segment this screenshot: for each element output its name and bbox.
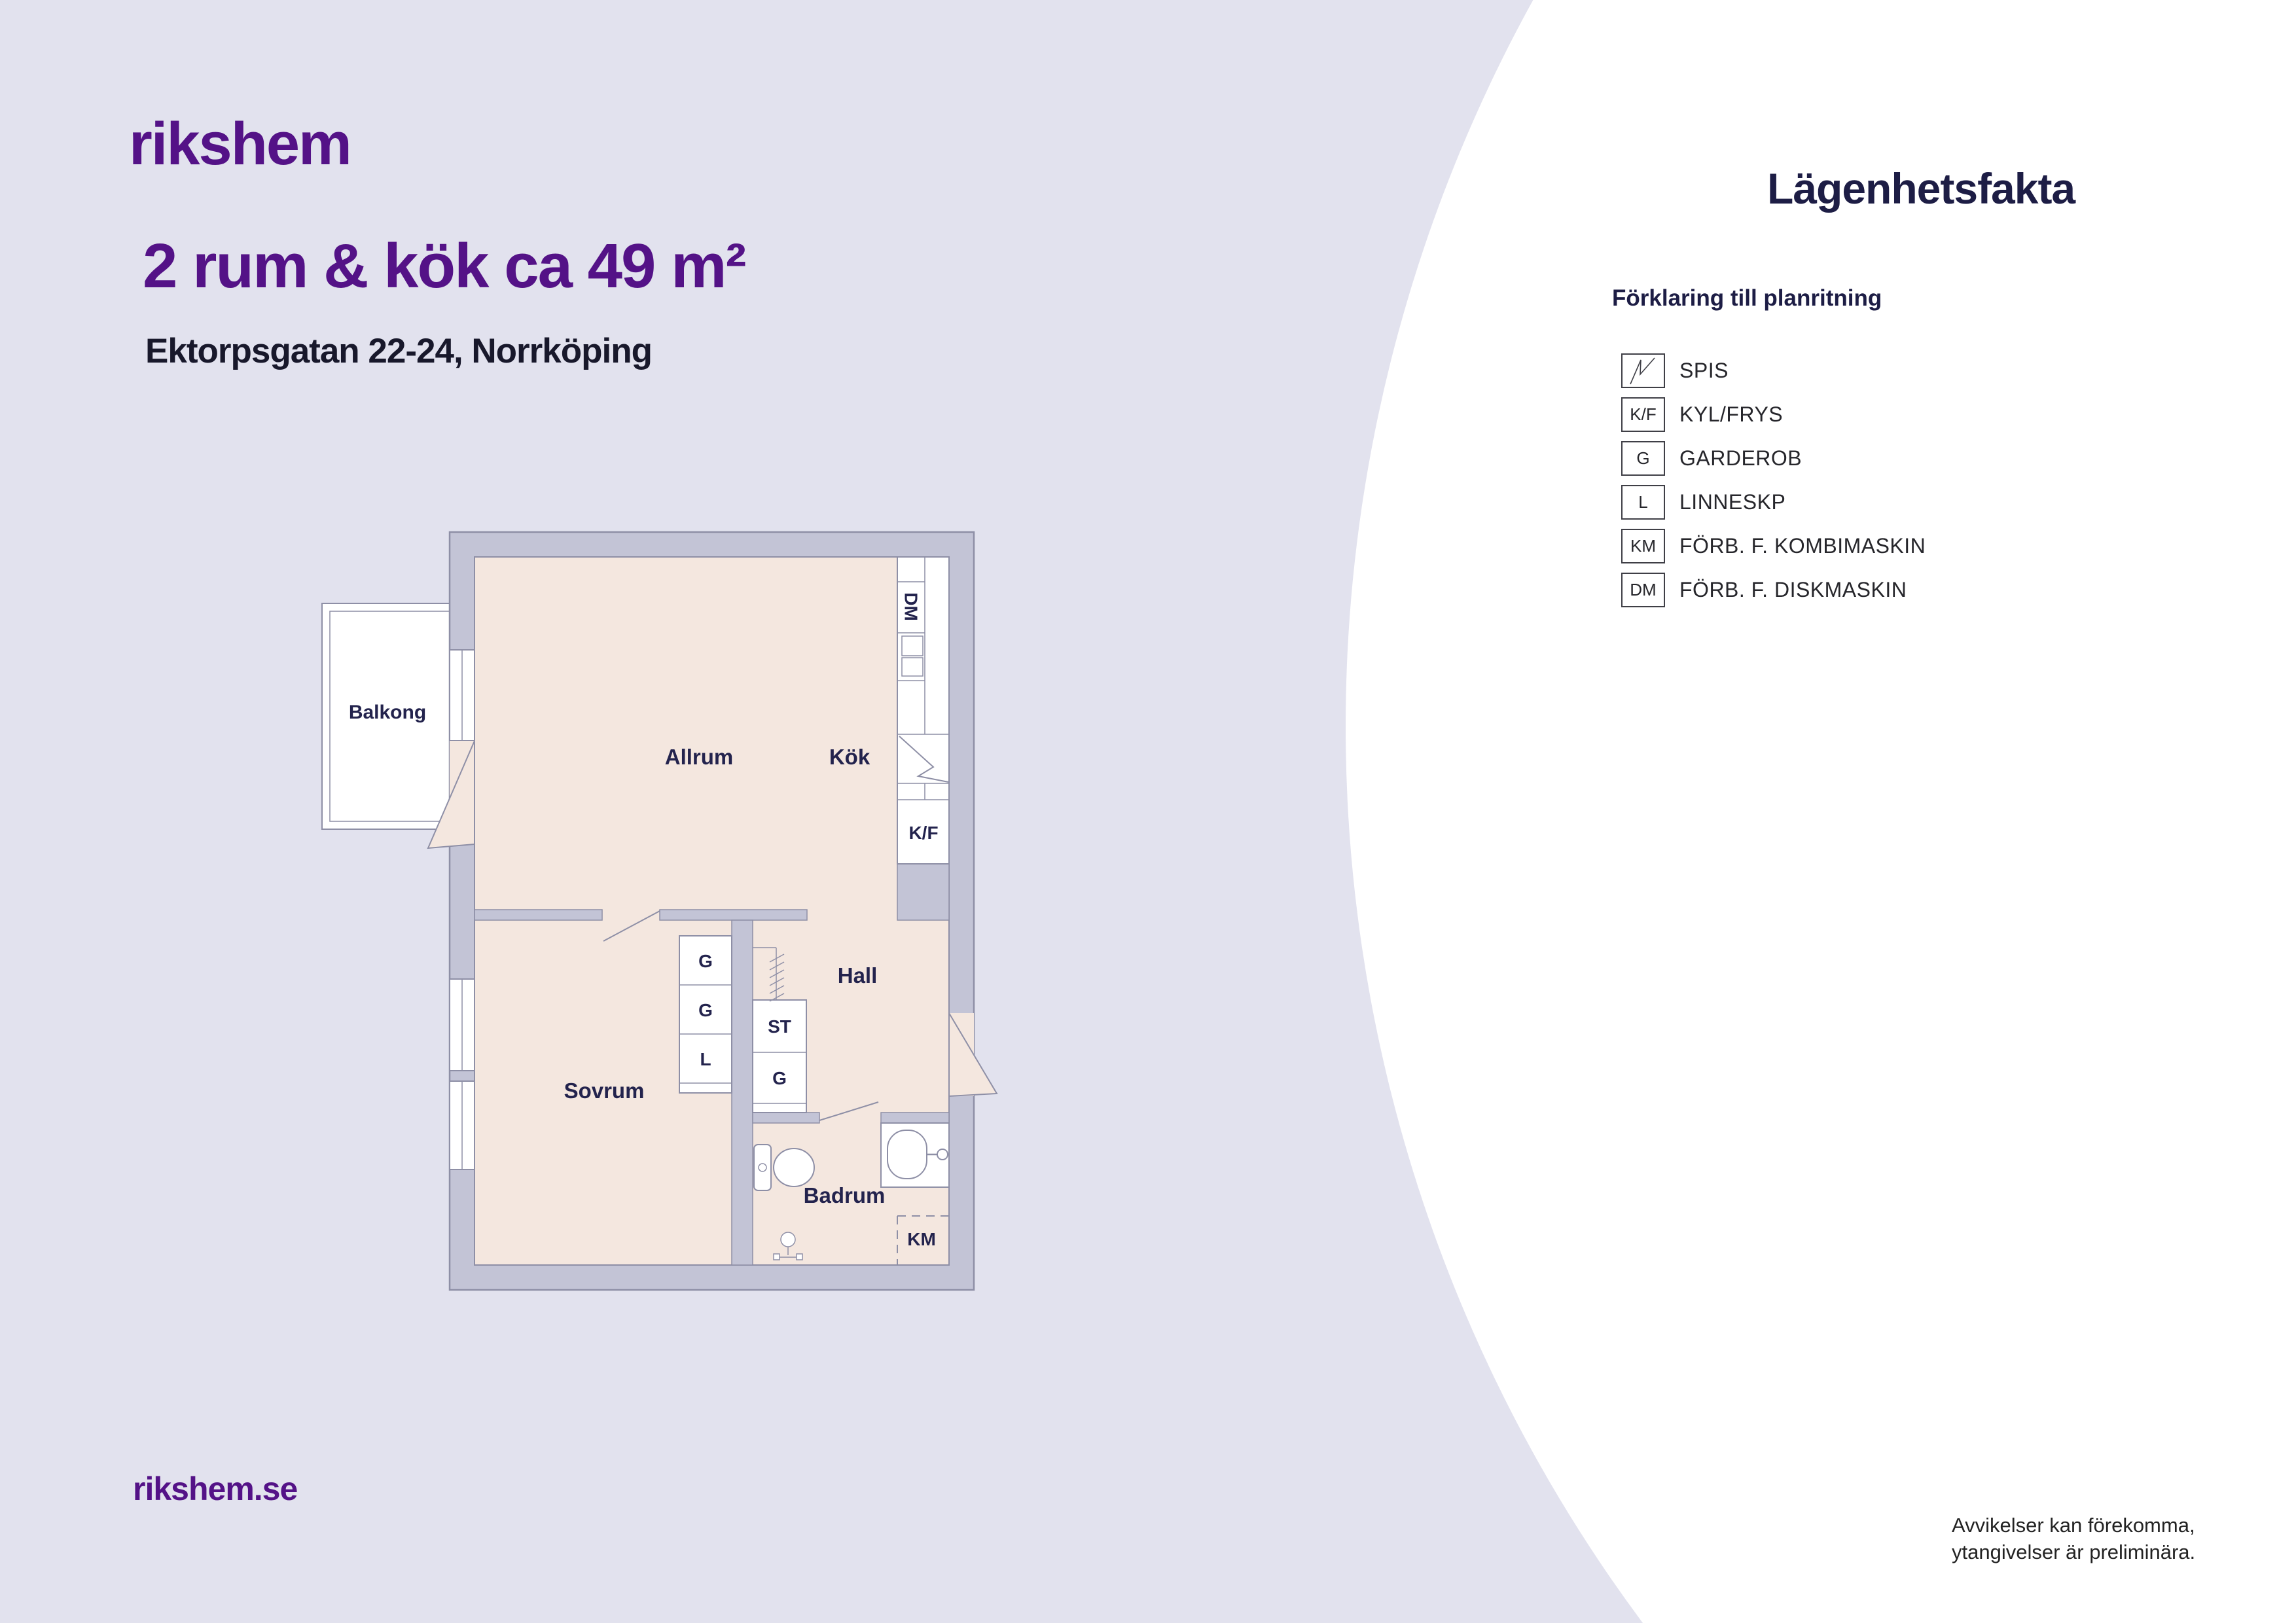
facts-title: Lägenhetsfakta (1767, 164, 2075, 213)
website-link: rikshem.se (133, 1470, 297, 1508)
legend-key-box: L (1621, 485, 1665, 520)
legend-key-box: K/F (1621, 397, 1665, 432)
address-subtitle: Ektorpsgatan 22-24, Norrköping (145, 331, 652, 371)
legend-key-box: KM (1621, 529, 1665, 563)
legend-label: GARDEROB (1679, 446, 1802, 471)
room-label-bedroom: Sovrum (564, 1079, 645, 1103)
legend-row-spis: SPIS (1621, 353, 1926, 388)
legend-label: SPIS (1679, 359, 1729, 383)
page-title: 2 rum & kök ca 49 m² (143, 230, 745, 302)
legend-key-box: G (1621, 441, 1665, 476)
disclaimer: Avvikelser kan förekomma, ytangivelser ä… (1952, 1512, 2195, 1565)
legend-row-kf: K/F KYL/FRYS (1621, 397, 1926, 432)
room-label-bathroom: Badrum (804, 1183, 886, 1207)
marker-g3: G (772, 1068, 787, 1088)
rikshem-logo: rikshem (129, 110, 351, 179)
legend-label: LINNESKP (1679, 490, 1785, 514)
legend-row-l: L LINNESKP (1621, 485, 1926, 520)
legend-row-km: KM FÖRB. F. KOMBIMASKIN (1621, 529, 1926, 563)
room-label-living: Allrum (665, 745, 734, 769)
legend: SPIS K/F KYL/FRYS G GARDEROB L LINNESKP … (1621, 353, 1926, 607)
marker-l: L (700, 1049, 711, 1069)
marker-dm: DM (901, 592, 922, 621)
legend-row-g: G GARDEROB (1621, 441, 1926, 476)
room-label-balcony: Balkong (349, 702, 426, 723)
entrance-door (949, 1013, 997, 1096)
background-circle (1346, 0, 2296, 1623)
marker-km: KM (907, 1229, 936, 1249)
marker-kf: K/F (908, 823, 938, 843)
page: rikshem 2 rum & kök ca 49 m² Ektorpsgata… (0, 0, 2296, 1623)
stove-zigzag-icon (1626, 355, 1660, 387)
room-label-kitchen: Kök (829, 745, 870, 769)
legend-label: FÖRB. F. DISKMASKIN (1679, 578, 1907, 602)
facts-subtitle: Förklaring till planritning (1612, 285, 1882, 312)
room-label-hall: Hall (838, 963, 878, 988)
legend-key-box: DM (1621, 573, 1665, 607)
legend-label: KYL/FRYS (1679, 402, 1783, 427)
stove-symbol-box (1621, 353, 1665, 388)
legend-label: FÖRB. F. KOMBIMASKIN (1679, 534, 1926, 558)
floorplan: Balkong Allrum Kök Sovrum Hall Badrum DM… (288, 510, 1014, 1315)
disclaimer-line-1: Avvikelser kan förekomma, (1952, 1512, 2195, 1539)
legend-row-dm: DM FÖRB. F. DISKMASKIN (1621, 573, 1926, 607)
disclaimer-line-2: ytangivelser är preliminära. (1952, 1539, 2195, 1565)
marker-g1: G (698, 951, 713, 971)
bathroom-sink-icon (881, 1123, 949, 1187)
marker-g2: G (698, 1000, 713, 1020)
marker-st: ST (768, 1016, 791, 1037)
